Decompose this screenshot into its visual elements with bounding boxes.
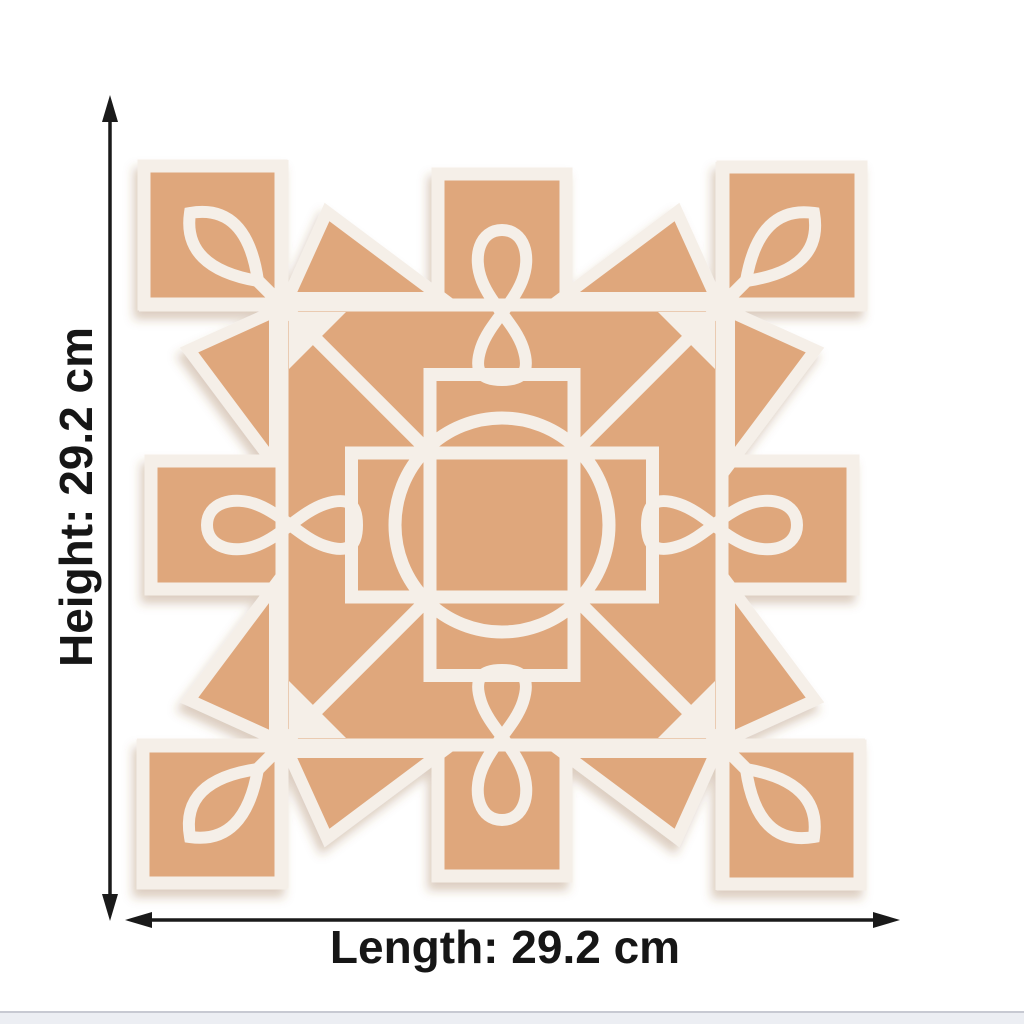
kolam-stencil bbox=[137, 160, 867, 890]
arrow-right-icon bbox=[873, 912, 900, 928]
length-dimension: Length: 29.2 cm bbox=[125, 912, 900, 973]
length-label: Length: 29.2 cm bbox=[330, 921, 680, 973]
diagram-canvas: Height: 29.2 cm Length: 29.2 cm bbox=[0, 0, 1024, 1024]
arrow-down-icon bbox=[102, 894, 118, 921]
floor-strip bbox=[0, 1012, 1024, 1024]
floor-edge-line bbox=[0, 1011, 1024, 1013]
arrow-up-icon bbox=[102, 95, 118, 122]
height-label: Height: 29.2 cm bbox=[50, 327, 102, 667]
arrow-left-icon bbox=[125, 912, 152, 928]
product-dimension-diagram: Height: 29.2 cm Length: 29.2 cm bbox=[0, 0, 1024, 1024]
height-dimension: Height: 29.2 cm bbox=[50, 95, 118, 921]
